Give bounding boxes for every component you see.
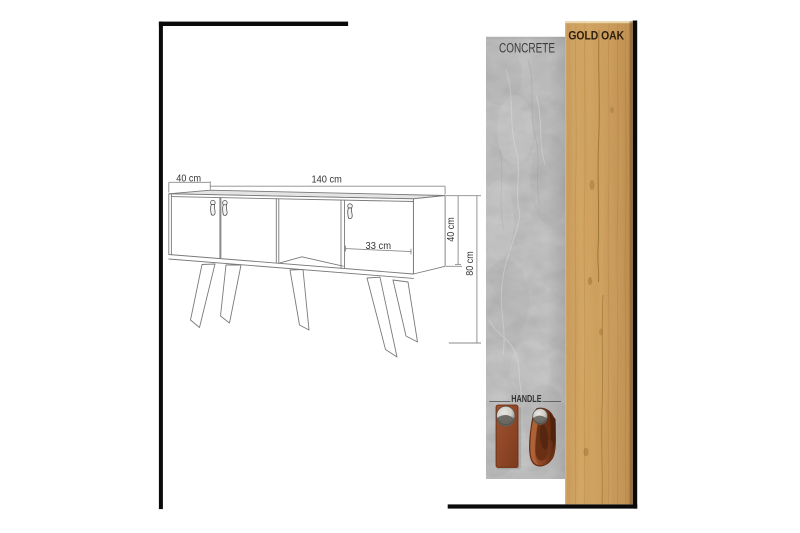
svg-text:40 cm: 40 cm: [176, 174, 201, 185]
svg-text:33 cm: 33 cm: [366, 241, 392, 252]
svg-text:40 cm: 40 cm: [446, 217, 457, 242]
svg-text:HANDLE: HANDLE: [511, 394, 542, 405]
svg-text:80 cm: 80 cm: [465, 251, 476, 276]
svg-text:CONCRETE: CONCRETE: [499, 41, 555, 56]
svg-text:140 cm: 140 cm: [312, 174, 342, 185]
svg-text:GOLD OAK: GOLD OAK: [568, 29, 624, 43]
